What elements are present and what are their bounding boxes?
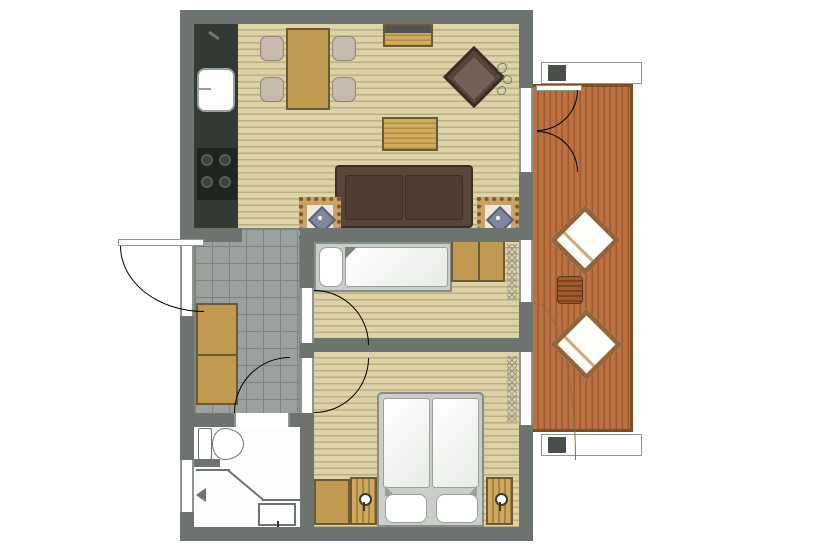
hallway-wardrobe xyxy=(196,303,238,405)
potted-plant-icon xyxy=(503,75,512,84)
burner-icon xyxy=(201,176,213,188)
double-bed xyxy=(377,392,484,527)
dining-chair xyxy=(260,77,284,102)
pillow xyxy=(385,494,427,523)
shower-edge-top xyxy=(196,469,230,471)
armchair-seat xyxy=(453,57,495,99)
sofa-cushion xyxy=(405,175,463,220)
coffee-table xyxy=(382,117,438,151)
floor-plan xyxy=(0,0,830,555)
wall-right-2 xyxy=(519,172,533,240)
mattress-fold xyxy=(345,247,357,259)
wall-hall-bedroom-1 xyxy=(300,228,314,288)
wall-living-bedroom xyxy=(300,228,519,242)
nightstand-right xyxy=(486,477,513,525)
lamp-stem xyxy=(499,502,501,511)
lounge-chair-fold xyxy=(563,232,593,262)
wall-right-3 xyxy=(519,302,533,352)
single-bedroom-window xyxy=(519,240,533,302)
dining-table xyxy=(286,28,330,110)
window-shutter-symbol-2 xyxy=(507,356,517,422)
sideboard xyxy=(383,24,433,47)
entrance-door-arc xyxy=(120,246,204,312)
wall-bottom xyxy=(180,527,533,541)
double-bedroom-door-opening xyxy=(300,358,314,413)
dining-chair xyxy=(332,36,356,61)
wall-hall-bathroom-a xyxy=(194,413,234,427)
single-bed xyxy=(314,242,452,292)
bathroom-door-opening xyxy=(234,413,290,427)
wall-hall-bedroom-2 xyxy=(300,343,314,358)
shower-edge-bottom xyxy=(262,499,300,501)
mosaic-dot xyxy=(496,216,500,220)
railing-post-top xyxy=(548,65,566,81)
dining-chair xyxy=(260,36,284,61)
pillow xyxy=(436,494,478,523)
dining-chair xyxy=(332,77,356,102)
stove xyxy=(197,148,237,200)
single-bedroom-door-opening xyxy=(300,288,314,343)
lounge-chair-fold xyxy=(564,336,595,367)
sink-basin-line xyxy=(197,88,211,90)
kitchen-sink xyxy=(197,68,235,112)
burner-icon xyxy=(219,176,231,188)
double-mattress-left xyxy=(383,398,430,488)
wall-left-upper xyxy=(180,10,194,240)
bathroom-window xyxy=(180,460,194,512)
lamp-icon xyxy=(359,493,372,506)
wardrobe-divider xyxy=(478,240,480,280)
balcony-french-door-opening xyxy=(519,88,533,172)
wall-hall-bathroom-b xyxy=(290,413,302,427)
hallway-wardrobe-divider xyxy=(198,354,236,356)
wall-right-1 xyxy=(519,10,533,88)
nightstand-left xyxy=(350,477,377,525)
sofa xyxy=(335,165,473,228)
bedroom-wardrobe xyxy=(451,238,505,282)
burner-icon xyxy=(201,154,213,166)
sofa-cushion xyxy=(345,175,403,220)
double-mattress-right xyxy=(432,398,479,488)
pillow xyxy=(319,247,343,287)
balcony-side-table xyxy=(557,276,583,304)
shower-tray xyxy=(258,503,296,526)
mosaic-dot xyxy=(318,216,322,220)
lamp-icon xyxy=(495,493,508,506)
lamp-stem xyxy=(363,502,365,511)
entrance-door-leaf xyxy=(118,239,204,246)
potted-plant-icon xyxy=(497,86,506,95)
wall-left-middle xyxy=(180,314,194,460)
wall-right-4 xyxy=(519,425,533,527)
double-bedroom-window xyxy=(519,352,533,425)
single-mattress xyxy=(345,247,448,287)
sideboard-top xyxy=(385,26,431,33)
burner-icon xyxy=(219,154,231,166)
wall-bathroom-stub xyxy=(194,459,220,467)
wall-top xyxy=(180,10,533,24)
toilet-tank xyxy=(198,428,212,460)
bedroom-cabinet xyxy=(314,479,350,525)
shower-head-icon xyxy=(196,488,206,502)
wall-bathroom-right xyxy=(300,413,314,527)
window-shutter-symbol-1 xyxy=(507,244,517,300)
